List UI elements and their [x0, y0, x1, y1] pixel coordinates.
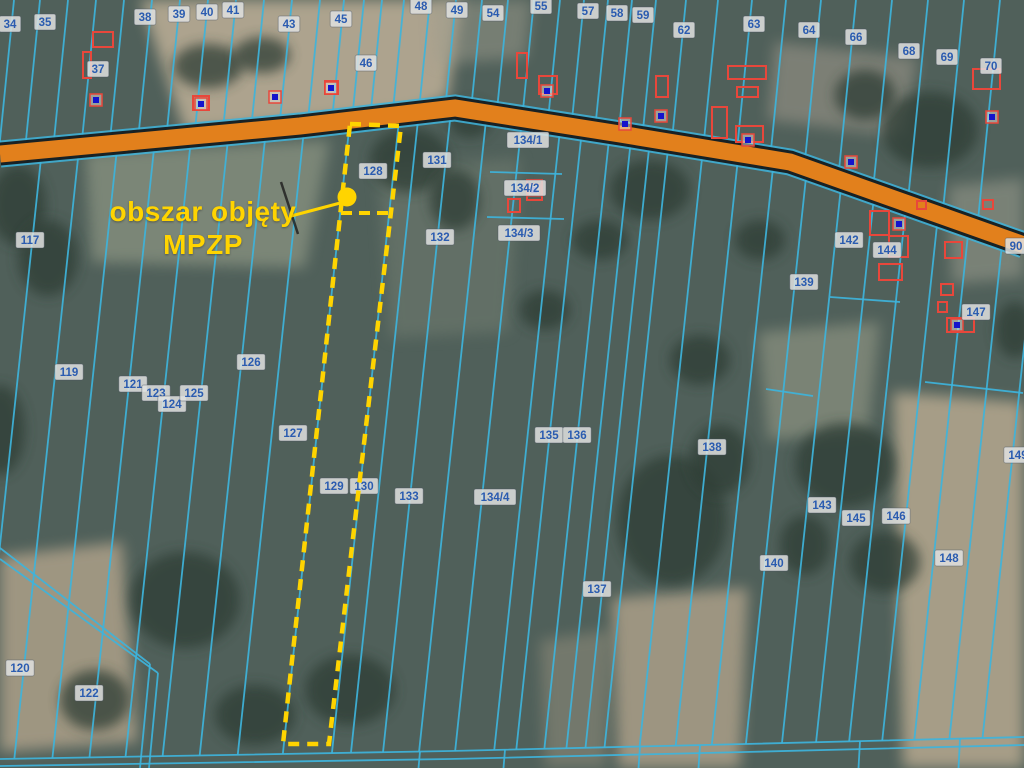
parcel-label: 69	[936, 49, 958, 65]
svg-text:39: 39	[173, 9, 186, 21]
svg-text:146: 146	[886, 511, 905, 523]
parcel-label: 43	[278, 16, 300, 32]
parcel-label: 62	[673, 22, 695, 38]
parcel-label: 39	[168, 6, 190, 22]
svg-text:49: 49	[451, 5, 464, 17]
svg-text:134/2: 134/2	[511, 183, 540, 195]
parcel-label: 145	[842, 510, 870, 526]
svg-text:133: 133	[399, 491, 418, 503]
svg-text:132: 132	[430, 232, 449, 244]
parcel-label: 57	[577, 3, 599, 19]
parcel-label: 68	[898, 43, 920, 59]
parcel-label: 127	[279, 425, 307, 441]
svg-text:147: 147	[966, 307, 985, 319]
svg-text:59: 59	[637, 10, 650, 22]
parcel-label: 128	[359, 163, 387, 179]
parcel-label: 119	[55, 364, 83, 380]
parcel-label: 54	[482, 5, 504, 21]
svg-text:134/4: 134/4	[481, 492, 510, 504]
parcel-label: 66	[845, 29, 867, 45]
parcel-label: 134/1	[507, 132, 549, 148]
svg-text:41: 41	[227, 5, 240, 17]
parcel-label: 59	[632, 7, 654, 23]
svg-text:55: 55	[535, 1, 548, 13]
parcel-label: 58	[606, 5, 628, 21]
svg-text:54: 54	[487, 8, 500, 20]
svg-text:34: 34	[4, 19, 17, 31]
svg-text:63: 63	[748, 19, 761, 31]
svg-text:145: 145	[846, 513, 866, 525]
svg-text:131: 131	[427, 155, 447, 167]
parcel-label: 122	[75, 685, 103, 701]
svg-text:70: 70	[985, 61, 998, 73]
parcel-label: 143	[808, 497, 836, 513]
parcel-label: 34	[0, 16, 21, 32]
parcel-label: 35	[34, 14, 56, 30]
svg-text:137: 137	[587, 584, 606, 596]
parcel-label: 70	[980, 58, 1002, 74]
svg-text:121: 121	[123, 379, 143, 391]
parcel-label: 45	[330, 11, 352, 27]
svg-text:126: 126	[241, 357, 260, 369]
svg-text:134/1: 134/1	[514, 135, 543, 147]
parcel-label: 135	[535, 427, 563, 443]
svg-text:120: 120	[10, 663, 29, 675]
svg-text:64: 64	[803, 25, 816, 37]
parcel-label: 49	[446, 2, 468, 18]
svg-text:128: 128	[363, 166, 383, 178]
parcel-label: 117	[16, 232, 44, 248]
svg-text:140: 140	[764, 558, 783, 570]
parcel-label: 134/3	[498, 225, 540, 241]
parcel-label: 37	[87, 61, 109, 77]
parcel-label: 90	[1005, 238, 1024, 254]
parcel-label: 149	[1004, 447, 1024, 463]
svg-text:68: 68	[903, 46, 916, 58]
parcel-label: 142	[835, 232, 863, 248]
parcel-label: 38	[134, 9, 156, 25]
parcel-label: 41	[222, 2, 244, 18]
svg-text:117: 117	[21, 235, 40, 247]
parcel-label: 125	[180, 385, 208, 401]
parcel-label: 48	[410, 0, 432, 14]
parcel-label: 40	[196, 4, 218, 20]
svg-text:135: 135	[539, 430, 559, 442]
parcel-label: 134/2	[504, 180, 546, 196]
parcel-label: 147	[962, 304, 990, 320]
svg-text:90: 90	[1010, 241, 1023, 253]
svg-text:37: 37	[92, 64, 105, 76]
svg-text:125: 125	[184, 388, 204, 400]
parcel-label: 46	[355, 55, 377, 71]
parcel-label: 133	[395, 488, 423, 504]
parcel-label: 130	[350, 478, 378, 494]
parcel-label: 139	[790, 274, 818, 290]
parcel-label: 131	[423, 152, 451, 168]
parcel-label: 140	[760, 555, 788, 571]
svg-text:46: 46	[360, 58, 373, 70]
svg-text:58: 58	[611, 8, 624, 20]
svg-text:66: 66	[850, 32, 863, 44]
svg-text:45: 45	[335, 14, 348, 26]
svg-text:136: 136	[567, 430, 586, 442]
svg-text:148: 148	[939, 553, 959, 565]
svg-text:122: 122	[79, 688, 98, 700]
svg-text:144: 144	[877, 245, 897, 257]
svg-text:143: 143	[812, 500, 831, 512]
parcel-label: 148	[935, 550, 963, 566]
parcel-label: 129	[320, 478, 348, 494]
svg-text:43: 43	[283, 19, 296, 31]
mpzp-point	[338, 188, 357, 207]
svg-text:35: 35	[39, 17, 52, 29]
svg-text:48: 48	[415, 1, 428, 13]
svg-text:40: 40	[201, 7, 214, 19]
svg-text:129: 129	[324, 481, 343, 493]
parcel-label: 55	[530, 0, 552, 14]
parcel-label: 120	[6, 660, 34, 676]
parcel-label: 134/4	[474, 489, 516, 505]
parcel-label: 126	[237, 354, 265, 370]
parcel-label: 144	[873, 242, 901, 258]
svg-text:134/3: 134/3	[505, 228, 534, 240]
parcel-label: 138	[698, 439, 726, 455]
cadastral-map: 3435373839404143454648495455575859626364…	[0, 0, 1024, 768]
svg-text:138: 138	[702, 442, 722, 454]
svg-text:124: 124	[162, 399, 182, 411]
parcel-label: 137	[583, 581, 611, 597]
parcel-label: 136	[563, 427, 591, 443]
svg-text:57: 57	[582, 6, 595, 18]
svg-text:69: 69	[941, 52, 954, 64]
parcel-label: 132	[426, 229, 454, 245]
parcel-label: 63	[743, 16, 765, 32]
svg-text:127: 127	[283, 428, 302, 440]
svg-text:149: 149	[1008, 450, 1024, 462]
parcel-label: 146	[882, 508, 910, 524]
svg-text:62: 62	[678, 25, 691, 37]
svg-text:119: 119	[60, 367, 79, 379]
svg-text:38: 38	[139, 12, 152, 24]
parcel-label: 64	[798, 22, 820, 38]
svg-text:142: 142	[839, 235, 858, 247]
map-viewport[interactable]: 3435373839404143454648495455575859626364…	[0, 0, 1024, 768]
svg-text:139: 139	[794, 277, 813, 289]
